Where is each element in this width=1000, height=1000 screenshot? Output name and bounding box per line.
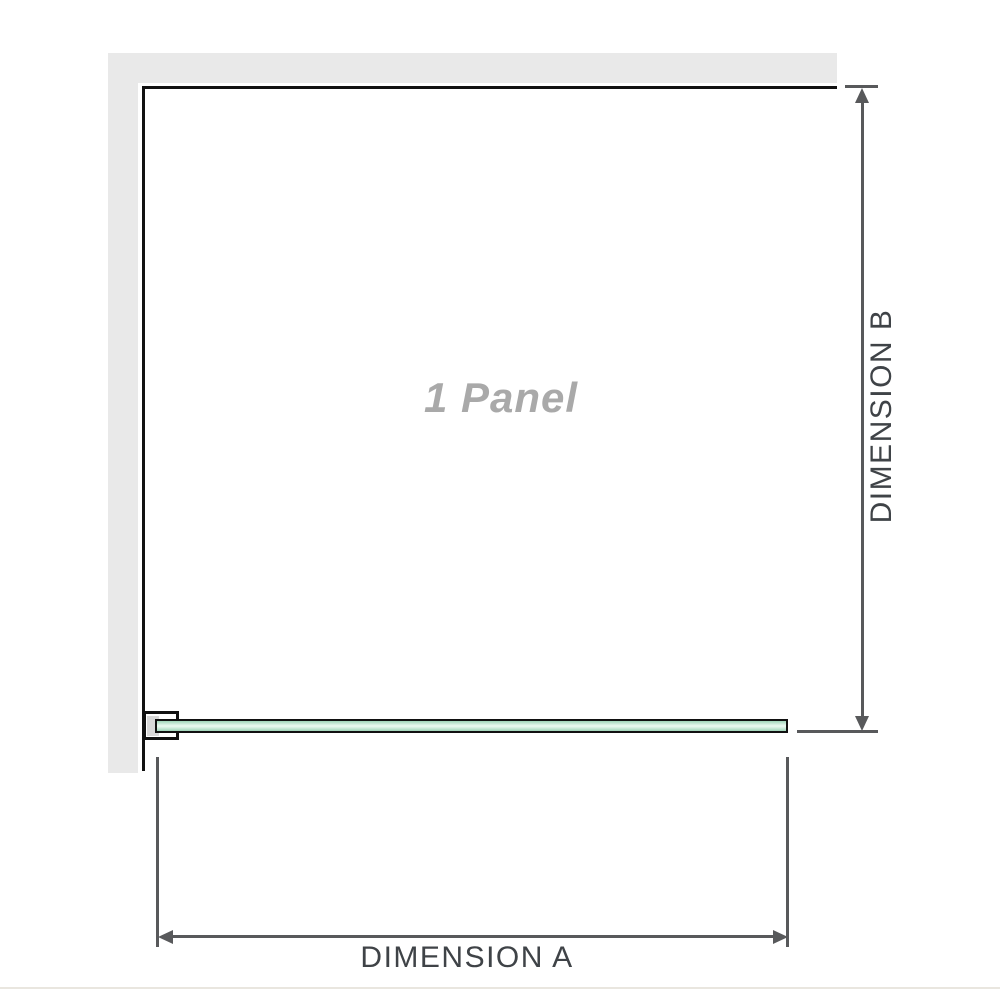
bottom-divider bbox=[0, 987, 1000, 989]
wall-left bbox=[108, 53, 138, 773]
dimension-a-extension-left bbox=[156, 757, 159, 947]
panel-left-edge bbox=[142, 86, 145, 771]
arrowhead-right-icon bbox=[773, 930, 788, 944]
arrowhead-up-icon bbox=[855, 88, 869, 103]
dimension-b-line bbox=[861, 99, 864, 718]
dimension-a-label: DIMENSION A bbox=[360, 941, 573, 975]
arrowhead-down-icon bbox=[855, 716, 869, 731]
arrowhead-left-icon bbox=[158, 930, 173, 944]
dimension-a-extension-right bbox=[786, 757, 789, 947]
dimension-b-label: DIMENSION B bbox=[865, 309, 899, 524]
wall-top bbox=[108, 53, 837, 83]
panel-top-edge bbox=[142, 86, 837, 89]
glass-panel bbox=[155, 719, 788, 733]
dimension-a-line bbox=[170, 935, 775, 938]
panel-count-label: 1 Panel bbox=[424, 374, 578, 422]
panel-dimension-diagram: 1 Panel DIMENSION B DIMENSION A bbox=[0, 0, 1000, 1000]
